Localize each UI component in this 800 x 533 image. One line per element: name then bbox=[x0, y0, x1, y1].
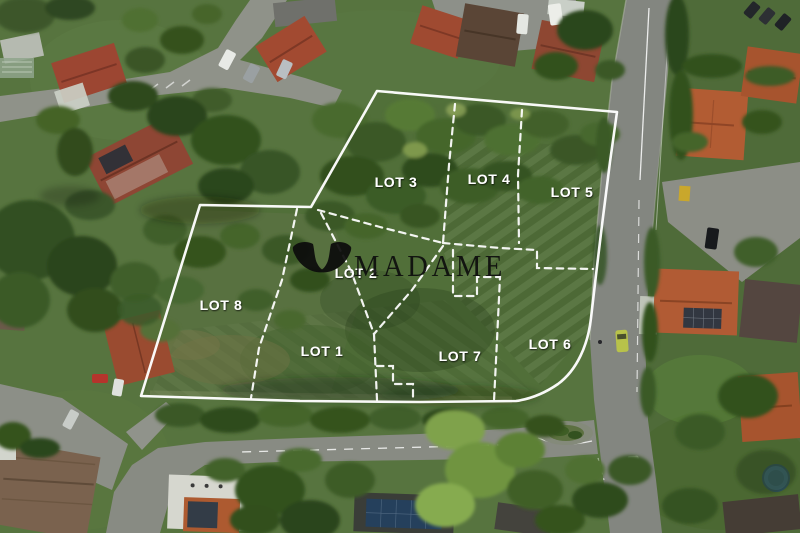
lot-label-8: LOT 8 bbox=[200, 297, 243, 313]
lot-label-3: LOT 3 bbox=[375, 174, 418, 190]
house-roof bbox=[456, 3, 524, 67]
waste-bin bbox=[678, 186, 690, 202]
car bbox=[516, 14, 529, 35]
brand-wordmark: MADAME bbox=[354, 248, 506, 283]
greenhouse bbox=[0, 58, 34, 78]
aerial-photo-stage: LOT 1 LOT 2 LOT 3 LOT 4 LOT 5 LOT 6 LOT … bbox=[0, 0, 800, 533]
house-roof bbox=[739, 279, 800, 343]
pedestrian bbox=[598, 340, 602, 344]
lot-label-4: LOT 4 bbox=[468, 171, 511, 187]
aerial-photo: LOT 1 LOT 2 LOT 3 LOT 4 LOT 5 LOT 6 LOT … bbox=[0, 0, 800, 533]
lot-label-6: LOT 6 bbox=[529, 336, 572, 352]
car bbox=[92, 374, 108, 383]
lot-label-5: LOT 5 bbox=[551, 184, 594, 200]
lot-label-7: LOT 7 bbox=[439, 348, 482, 364]
car bbox=[615, 330, 629, 353]
lot-label-1: LOT 1 bbox=[301, 343, 344, 359]
